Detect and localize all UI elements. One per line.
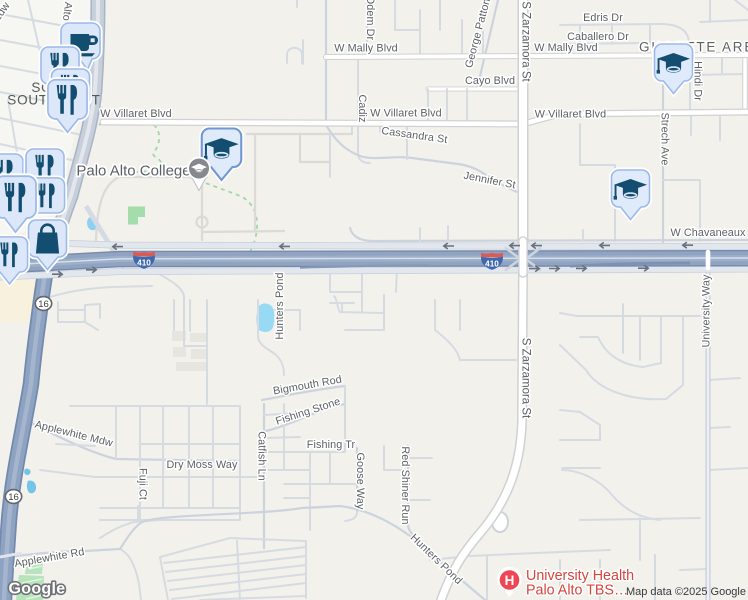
svg-text:W Villaret Blvd: W Villaret Blvd <box>535 109 607 121</box>
svg-text:Dry Moss Way: Dry Moss Way <box>167 459 238 471</box>
svg-text:S Zarzamora St: S Zarzamora St <box>520 338 532 419</box>
svg-text:Map data ©2025 Google: Map data ©2025 Google <box>626 586 746 598</box>
svg-text:W Chavaneaux: W Chavaneaux <box>670 227 746 239</box>
svg-text:Palo Alto TBS…: Palo Alto TBS… <box>526 583 628 599</box>
svg-text:Fishing Tr: Fishing Tr <box>307 439 356 451</box>
svg-text:Cayo Blvd: Cayo Blvd <box>465 75 515 87</box>
svg-text:Hunters Pond: Hunters Pond <box>274 272 286 339</box>
svg-text:W Villaret Blvd: W Villaret Blvd <box>100 108 172 120</box>
svg-text:S Zarzamora St: S Zarzamora St <box>520 1 532 82</box>
svg-text:Strech Ave: Strech Ave <box>659 112 671 165</box>
svg-text:H: H <box>505 573 515 588</box>
svg-text:Goose Way: Goose Way <box>354 453 366 510</box>
svg-text:W Mally Blvd: W Mally Blvd <box>534 42 598 54</box>
svg-text:Hindi Dr: Hindi Dr <box>692 61 704 101</box>
svg-text:Red Shiner Run: Red Shiner Run <box>399 446 411 524</box>
svg-text:Catfish Ln: Catfish Ln <box>256 431 268 481</box>
svg-text:410: 410 <box>485 259 499 268</box>
svg-text:16: 16 <box>8 492 19 503</box>
svg-text:16: 16 <box>38 299 49 310</box>
svg-text:Alto: Alto <box>60 1 74 21</box>
svg-text:Odem Dr: Odem Dr <box>364 0 376 41</box>
svg-text:Palo Alto College: Palo Alto College <box>76 163 190 180</box>
svg-text:W Villaret Blvd: W Villaret Blvd <box>370 108 442 120</box>
svg-text:Edris Dr: Edris Dr <box>583 12 623 24</box>
svg-text:410: 410 <box>137 258 151 267</box>
svg-text:Google: Google <box>9 581 66 598</box>
svg-text:University Way: University Way <box>701 274 713 347</box>
svg-text:Cadiz: Cadiz <box>356 94 368 122</box>
svg-text:Fuji Ct: Fuji Ct <box>137 468 149 500</box>
svg-text:W Mally Blvd: W Mally Blvd <box>334 43 398 55</box>
